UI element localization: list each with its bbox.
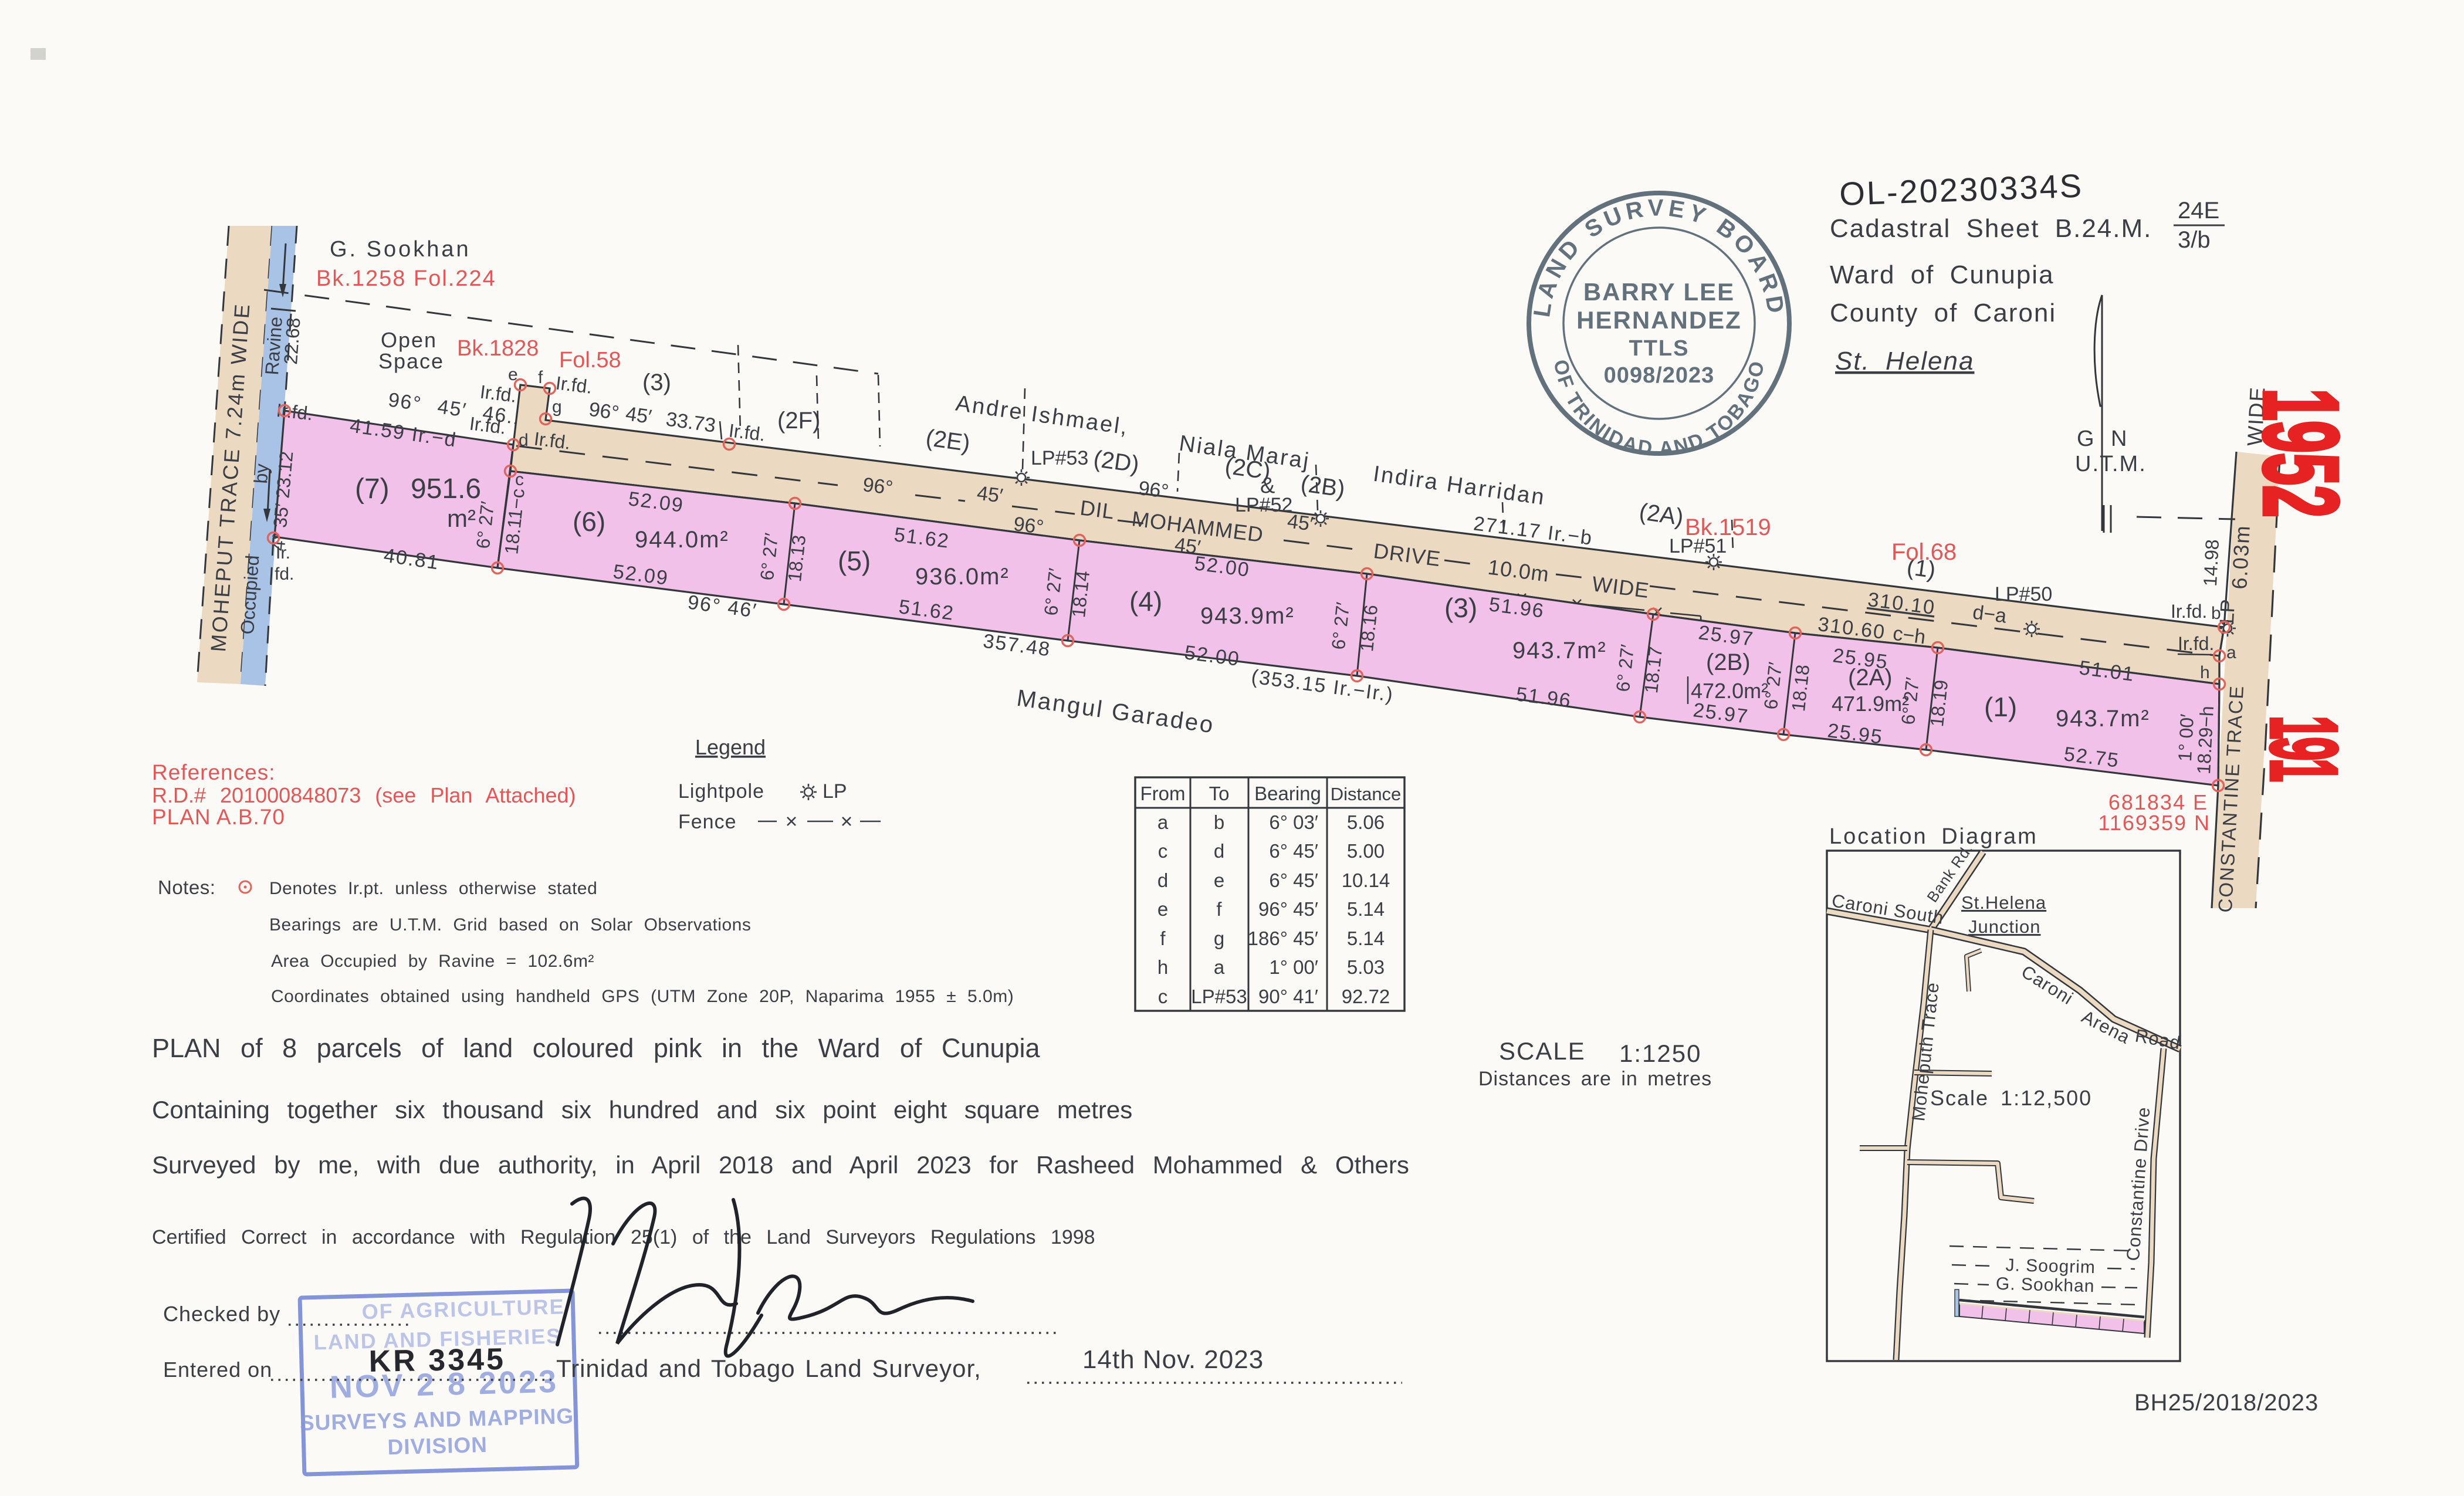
svg-text:G. Sookhan: G. Sookhan (1996, 1274, 2095, 1296)
svg-text:191: 191 (2251, 716, 2355, 781)
svg-text:d: d (1214, 840, 1224, 862)
svg-text:(3): (3) (1444, 593, 1477, 623)
svg-text:KR 3345: KR 3345 (368, 1342, 506, 1379)
svg-text:Distances are in metres: Distances are in metres (1478, 1068, 1712, 1090)
svg-text:472.0m²: 472.0m² (1691, 679, 1768, 703)
svg-text:Bk.1258 Fol.224: Bk.1258 Fol.224 (316, 266, 496, 291)
svg-text:1:1250: 1:1250 (1619, 1040, 1701, 1067)
svg-text:SCALE: SCALE (1499, 1037, 1586, 1065)
svg-text:5.14: 5.14 (1347, 928, 1385, 949)
svg-text:g: g (552, 397, 562, 417)
svg-text:90° 41′: 90° 41′ (1258, 986, 1318, 1007)
svg-text:(6): (6) (573, 506, 605, 537)
svg-text:(5): (5) (838, 546, 871, 576)
svg-text:Certified Correct in accord: Certified Correct in accordance with Reg… (152, 1226, 1095, 1248)
svg-text:From: From (1140, 783, 1186, 804)
svg-text:Entered on: Entered on (163, 1358, 272, 1382)
svg-text:45′: 45′ (624, 402, 653, 428)
svg-text:Legend: Legend (695, 735, 766, 759)
svg-text:Bearing: Bearing (1254, 783, 1321, 804)
svg-text:186° 45′: 186° 45′ (1248, 928, 1318, 949)
svg-text:PLAN of 8 parcels of land: PLAN of 8 parcels of land coloured pink … (152, 1033, 1041, 1063)
svg-text:U.T.M.: U.T.M. (2075, 452, 2147, 476)
svg-text:County of Caroni: County of Caroni (1830, 299, 2056, 327)
svg-text:BH25/2018/2023: BH25/2018/2023 (2134, 1390, 2319, 1416)
svg-text:Space: Space (378, 349, 444, 373)
svg-text:References:: References: (152, 760, 276, 784)
svg-text:g: g (1214, 928, 1224, 949)
svg-text:b: b (1214, 811, 1224, 833)
svg-text:5.03: 5.03 (1347, 956, 1385, 978)
svg-text:LP#53: LP#53 (1191, 986, 1247, 1007)
svg-text:Open: Open (381, 328, 437, 352)
svg-text:6° 03′: 6° 03′ (1269, 811, 1318, 833)
svg-text:(2F): (2F) (777, 408, 820, 434)
svg-text:f: f (1216, 898, 1222, 920)
svg-text:a: a (1214, 956, 1225, 978)
svg-text:22.68: 22.68 (280, 317, 304, 365)
svg-text:e: e (1214, 869, 1224, 891)
svg-text:1952: 1952 (2242, 388, 2361, 517)
svg-text:Fol.58: Fol.58 (559, 348, 621, 373)
svg-text:a: a (2226, 643, 2236, 662)
svg-text:G: G (2077, 427, 2094, 451)
svg-text:a: a (1157, 811, 1169, 833)
svg-text:Location Diagram: Location Diagram (1829, 824, 2038, 849)
svg-text:3/b: 3/b (2178, 227, 2211, 253)
svg-text:24E: 24E (2178, 198, 2219, 224)
svg-text:Containing together six tho: Containing together six thousand six hun… (152, 1096, 1132, 1123)
svg-text:Area Occupied by Ravine =: Area Occupied by Ravine = 102.6m² (271, 952, 594, 971)
svg-text:96°: 96° (587, 398, 620, 425)
svg-text:Trinidad and Tobago Land S: Trinidad and Tobago Land Surveyor, (556, 1355, 981, 1382)
svg-text:471.9m²: 471.9m² (1832, 692, 1909, 716)
svg-text:Bk.1828: Bk.1828 (457, 336, 539, 361)
svg-text:6° 45′: 6° 45′ (1269, 840, 1318, 862)
svg-text:f: f (538, 368, 543, 387)
svg-text:14.98: 14.98 (2199, 539, 2223, 587)
svg-text:f: f (1160, 928, 1166, 949)
svg-text:R.D.# 201000848073 (see Pla: R.D.# 201000848073 (see Plan Attached) (152, 783, 576, 807)
svg-text:951.6: 951.6 (411, 473, 481, 505)
svg-text:(7): (7) (355, 473, 390, 505)
svg-text:Ir.fd.: Ir.fd. (275, 400, 314, 424)
svg-text:96°: 96° (862, 473, 895, 499)
svg-text:18.29−h: 18.29−h (2193, 705, 2218, 774)
svg-text:Scale 1:12,500: Scale 1:12,500 (1930, 1086, 2092, 1110)
svg-text:944.0m²: 944.0m² (635, 527, 729, 553)
svg-text:(2B): (2B) (1706, 649, 1751, 675)
svg-text:Distance: Distance (1331, 784, 1402, 804)
svg-text:1169359 N: 1169359 N (2099, 811, 2211, 835)
svg-text:10.14: 10.14 (1342, 869, 1390, 891)
svg-text:(1): (1) (1984, 692, 2017, 722)
svg-text:e: e (1157, 898, 1168, 920)
svg-text:LP#52: LP#52 (1235, 494, 1292, 516)
svg-text:G. Sookhan: G. Sookhan (330, 237, 471, 262)
svg-text:(3): (3) (642, 370, 671, 395)
svg-text:Fol.68: Fol.68 (1891, 539, 1957, 565)
svg-text:Cadastral Sheet B.24.M.: Cadastral Sheet B.24.M. (1830, 214, 2152, 243)
svg-text:HERNANDEZ: HERNANDEZ (1576, 306, 1742, 334)
svg-text:LP#50: LP#50 (1995, 583, 2052, 605)
svg-text:943.9m²: 943.9m² (1200, 603, 1295, 629)
svg-text:Surveyed by me, with due: Surveyed by me, with due authority, in A… (152, 1151, 1409, 1179)
svg-text:Fence: Fence (678, 811, 737, 833)
svg-text:Coordinates obtained using: Coordinates obtained using handheld GPS … (271, 987, 1014, 1006)
svg-text:To: To (1209, 783, 1230, 804)
svg-text:fd.: fd. (275, 564, 294, 584)
svg-text:Ir.fd.: Ir.fd. (2171, 601, 2207, 622)
svg-text:Ir.fd.: Ir.fd. (2178, 633, 2214, 654)
svg-text:Notes:: Notes: (158, 876, 215, 898)
svg-text:943.7m²: 943.7m² (1512, 638, 1607, 664)
svg-text:LP#53: LP#53 (1031, 447, 1088, 469)
svg-text:Checked by: Checked by (163, 1302, 280, 1326)
svg-text:b: b (2211, 604, 2221, 623)
svg-text:c: c (1158, 840, 1168, 862)
svg-text:DIVISION: DIVISION (387, 1433, 488, 1459)
svg-text:0098/2023: 0098/2023 (1604, 363, 1715, 388)
svg-text:Lightpole: Lightpole (678, 780, 764, 803)
svg-text:96°: 96° (1138, 477, 1170, 503)
svg-text:Ir.fd.: Ir.fd. (533, 428, 571, 453)
svg-text:(4): (4) (1129, 586, 1162, 617)
svg-text:Ward of Cunupia: Ward of Cunupia (1830, 260, 2055, 289)
svg-text:h: h (1157, 956, 1168, 978)
svg-text:936.0m²: 936.0m² (915, 564, 1010, 590)
svg-text:DIL: DIL (1079, 496, 1116, 524)
svg-text:LP: LP (823, 780, 847, 803)
svg-text:5.14: 5.14 (1347, 898, 1385, 920)
svg-text:Ir.fd.: Ir.fd. (554, 372, 593, 397)
svg-text:Ir.fd.: Ir.fd. (468, 412, 507, 438)
svg-text:d: d (519, 431, 529, 450)
svg-text:Ir.: Ir. (276, 543, 290, 563)
svg-text:TTLS: TTLS (1629, 336, 1690, 361)
svg-text:6.03m: 6.03m (2227, 524, 2255, 590)
svg-text:N: N (2111, 427, 2127, 451)
svg-text:h: h (2200, 663, 2210, 682)
svg-text:Bearings are U.T.M. Grid b: Bearings are U.T.M. Grid based on Solar … (269, 915, 751, 935)
svg-text:96° 45′: 96° 45′ (1258, 898, 1318, 920)
svg-text:Denotes Ir.pt. unless other: Denotes Ir.pt. unless otherwise stated (269, 879, 597, 898)
svg-text:5.00: 5.00 (1347, 840, 1385, 862)
svg-text:BARRY LEE: BARRY LEE (1583, 278, 1735, 306)
svg-text:m²: m² (447, 505, 476, 532)
svg-text:14th Nov. 2023: 14th Nov. 2023 (1082, 1345, 1264, 1374)
svg-text:Junction: Junction (1968, 916, 2040, 937)
svg-text:6° 45′: 6° 45′ (1269, 869, 1318, 891)
svg-text:PLAN A.B.70: PLAN A.B.70 (152, 805, 285, 829)
svg-text:943.7m²: 943.7m² (2056, 706, 2150, 732)
svg-text:St.Helena: St.Helena (1961, 892, 2046, 913)
svg-text:c: c (1158, 986, 1168, 1007)
svg-text:J. Soogrim: J. Soogrim (2005, 1255, 2096, 1277)
svg-text:St. Helena: St. Helena (1835, 347, 1974, 375)
svg-text:d: d (1157, 869, 1168, 891)
svg-text:LP#51: LP#51 (1669, 535, 1727, 557)
svg-text:45′: 45′ (976, 482, 1004, 507)
svg-text:5.06: 5.06 (1347, 811, 1385, 833)
svg-text:92.72: 92.72 (1342, 986, 1390, 1007)
svg-text:Ir.fd.: Ir.fd. (479, 381, 517, 406)
svg-text:1° 00′: 1° 00′ (1269, 956, 1318, 978)
